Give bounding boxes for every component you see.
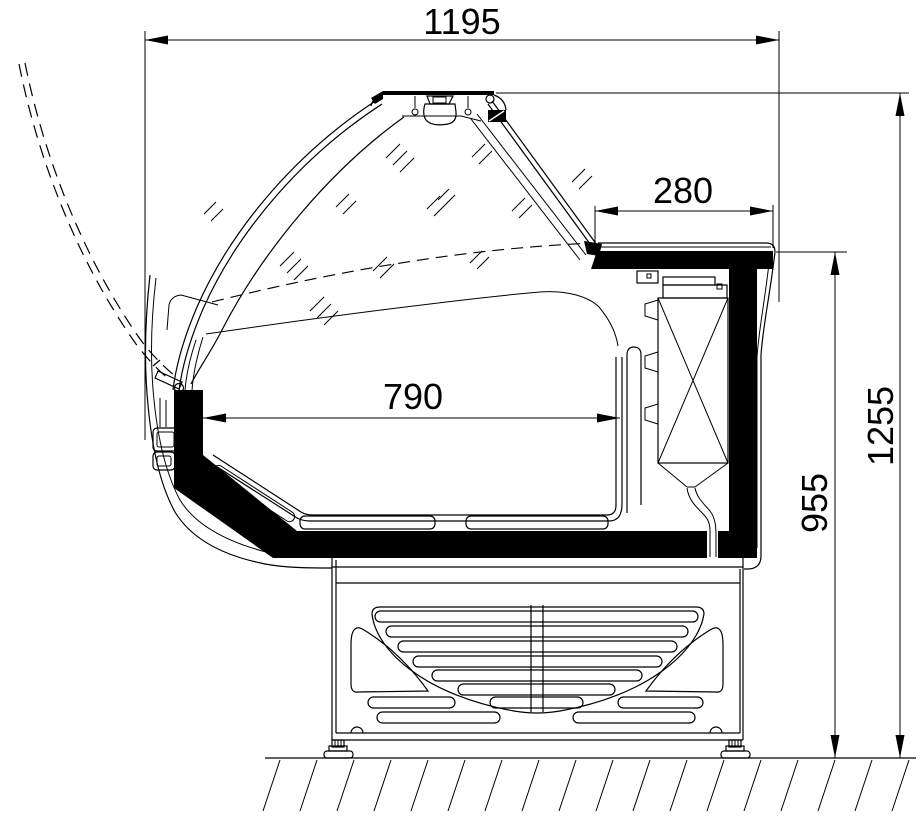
deck-pan (300, 516, 435, 529)
front-glass (153, 100, 404, 393)
pedestal-bottom-notches (351, 727, 722, 733)
grille-slot (375, 611, 698, 622)
arrowhead (831, 252, 840, 275)
canopy (371, 91, 506, 125)
grille-slot (432, 670, 642, 681)
arrowhead (896, 93, 905, 116)
grille-slot (458, 684, 615, 695)
grille-slot (398, 641, 677, 652)
grille-center-divider (531, 605, 543, 712)
canopy-lamp (424, 104, 456, 125)
grille-slot (386, 626, 688, 637)
left-foot (324, 740, 353, 758)
section-drawing: 1195 280 790 955 1255 (0, 0, 922, 821)
grille-slot (618, 697, 703, 708)
counter-insulation (591, 251, 773, 269)
ground (263, 758, 916, 811)
dimension-well-width: 790 (203, 376, 620, 423)
arrowhead (831, 735, 840, 758)
grille-slot (368, 697, 455, 708)
flap-open-line (212, 243, 595, 302)
dimension-counter-depth: 280 (595, 170, 773, 248)
arrowhead (756, 36, 779, 45)
drawing-canvas: 1195 280 790 955 1255 (0, 0, 922, 821)
grille-slot (573, 712, 695, 723)
grille-slot (413, 656, 662, 667)
coil-clips (645, 300, 658, 424)
dim-overall-height-label: 1255 (860, 386, 901, 466)
canopy-screw (412, 109, 418, 115)
evaporator (637, 271, 728, 463)
coil-cross (658, 298, 728, 463)
interior-lines (206, 243, 618, 346)
vent-grille (351, 605, 723, 723)
arrowhead (896, 735, 905, 758)
dimension-overall-width: 1195 (145, 1, 779, 440)
deck-pan (466, 516, 608, 529)
grille-slot (377, 712, 500, 723)
rear-glass (471, 101, 597, 260)
dim-counter-height-label: 955 (794, 473, 835, 533)
dimension-counter-height: 955 (776, 252, 847, 758)
arrowhead (595, 207, 618, 216)
ground-hatching (263, 760, 909, 811)
rear-wall-insulation (729, 269, 757, 532)
canopy-screw (465, 109, 471, 115)
right-foot (721, 740, 750, 758)
base-pedestal (324, 558, 750, 758)
rear-air-duct (627, 347, 641, 513)
insulation (174, 241, 773, 559)
tank-insulation (174, 390, 757, 558)
counter-top (598, 243, 775, 252)
arrowhead (203, 414, 226, 423)
arrowhead (750, 207, 773, 216)
display-deck (208, 347, 641, 529)
dim-counter-depth-label: 280 (653, 170, 713, 211)
dim-overall-width-label: 1195 (423, 1, 500, 42)
arrowhead (145, 36, 168, 45)
glass-shine-ticks (204, 144, 592, 325)
bumper-bracket (160, 398, 166, 427)
grille-slot (490, 697, 583, 708)
dim-well-width-label: 790 (383, 376, 443, 417)
inner-liner-line (206, 292, 618, 346)
